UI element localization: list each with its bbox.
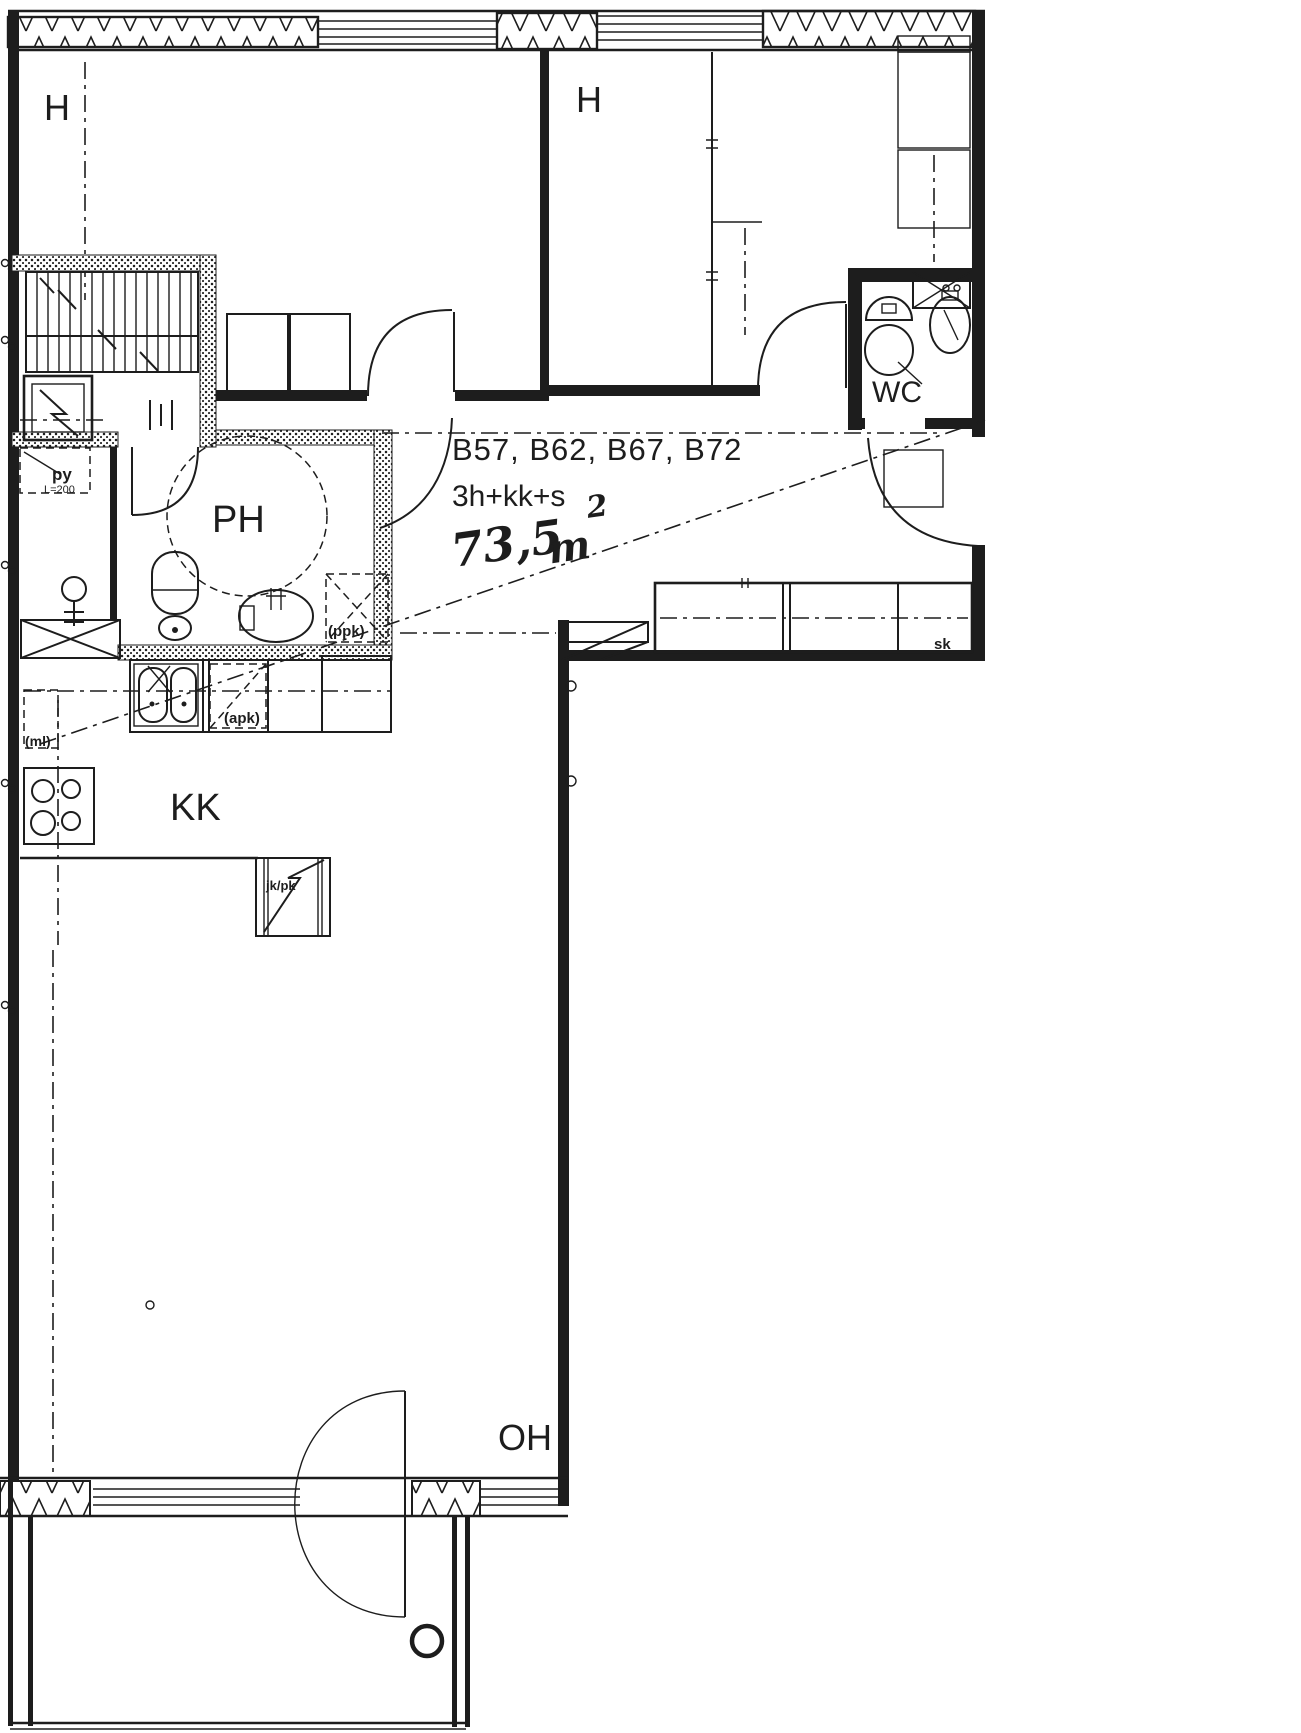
balcony-door [295, 1391, 405, 1617]
laundry-bin: py L=200 [20, 448, 90, 496]
south-wall [0, 1478, 568, 1516]
window-sill-hatch [497, 13, 597, 49]
top-window-left [318, 21, 497, 44]
washing-slab [21, 620, 120, 658]
bedroom-left-label: H [44, 87, 70, 128]
living-room-label: OH [498, 1417, 552, 1458]
kitchen-sink [134, 664, 198, 726]
bathroom-inner-wall [110, 447, 117, 620]
balcony [8, 1391, 470, 1729]
south-window-left [93, 1489, 300, 1505]
dishwasher-label: (apk) [224, 710, 260, 727]
kitchen-counter [130, 660, 391, 732]
annotation: B57, B62, B67, B72 3h+kk+s 73,5 m 2 [446, 432, 743, 587]
wc-label: WC [872, 376, 922, 409]
exterior-walls [2, 11, 986, 1506]
floor-plan-drawing: H H [0, 0, 1301, 1733]
bathroom-wall [118, 645, 392, 660]
wc-toilet [865, 297, 922, 384]
cabinet [898, 52, 970, 148]
shower-symbol [62, 577, 86, 626]
fridge-freezer: jk/pk [256, 858, 330, 936]
closet [227, 314, 288, 392]
bathroom-ph: PH py L=200 (ppk) [20, 418, 452, 660]
kitchenette-kk: KK (apk) (ml) [20, 656, 391, 936]
window-sill-hatch [0, 1481, 90, 1516]
laundry-bin-label: py [52, 465, 72, 484]
wardrobe-row: sk [655, 578, 972, 653]
balcony-drain [412, 1626, 442, 1656]
bathroom-wall [374, 430, 392, 660]
bedroom-left: H [44, 50, 549, 401]
layout-code: 3h+kk+s [452, 480, 565, 513]
window-sill-hatch [412, 1481, 480, 1516]
kitchenette-label: KK [170, 787, 221, 829]
kitchen-cabinet [322, 656, 391, 732]
area-unit: m [545, 521, 593, 573]
toilet-wc: WC [848, 268, 985, 430]
window-sill-hatch [763, 11, 975, 47]
door-arc-sauna [132, 447, 198, 515]
sauna-benches [26, 272, 198, 430]
door-arc-bedroom-left [368, 310, 454, 396]
south-window-right [480, 1489, 558, 1505]
bathroom-wall [216, 430, 392, 445]
top-window-right [597, 16, 763, 40]
bedroom-right-label: H [576, 79, 602, 120]
right-exterior-wall [972, 11, 985, 437]
sauna-heater [24, 376, 92, 440]
area-exponent: 2 [583, 488, 610, 526]
entry-mat [884, 450, 943, 507]
bedroom-partition-wall [540, 50, 549, 401]
dishwasher-reservation: (apk) [210, 664, 266, 728]
fridge-freezer-label: jk/pk [265, 878, 296, 893]
sauna-wall [200, 255, 216, 447]
stove [24, 768, 94, 844]
laundry-bin-dim: L=200 [44, 484, 75, 496]
closet-label: sk [934, 636, 951, 653]
hallway: sk [562, 438, 978, 660]
door-arc-bedroom-right [758, 302, 846, 390]
section-lines [20, 420, 985, 1474]
apartment-ids: B57, B62, B67, B72 [452, 432, 742, 467]
closet [290, 314, 350, 392]
window-sill-hatch [8, 17, 318, 47]
bedroom-right: H [548, 52, 846, 396]
toilet [152, 552, 198, 640]
sauna-wall [12, 255, 216, 271]
lower-right-exterior-wall [558, 620, 569, 1506]
floor-plan-page: H H [0, 0, 1301, 1733]
washing-machine-label: (ppk) [328, 623, 365, 640]
bathroom-label: PH [212, 499, 265, 541]
closet-column [898, 36, 970, 262]
left-exterior-wall [8, 11, 19, 1480]
right-exterior-wall [972, 545, 985, 655]
